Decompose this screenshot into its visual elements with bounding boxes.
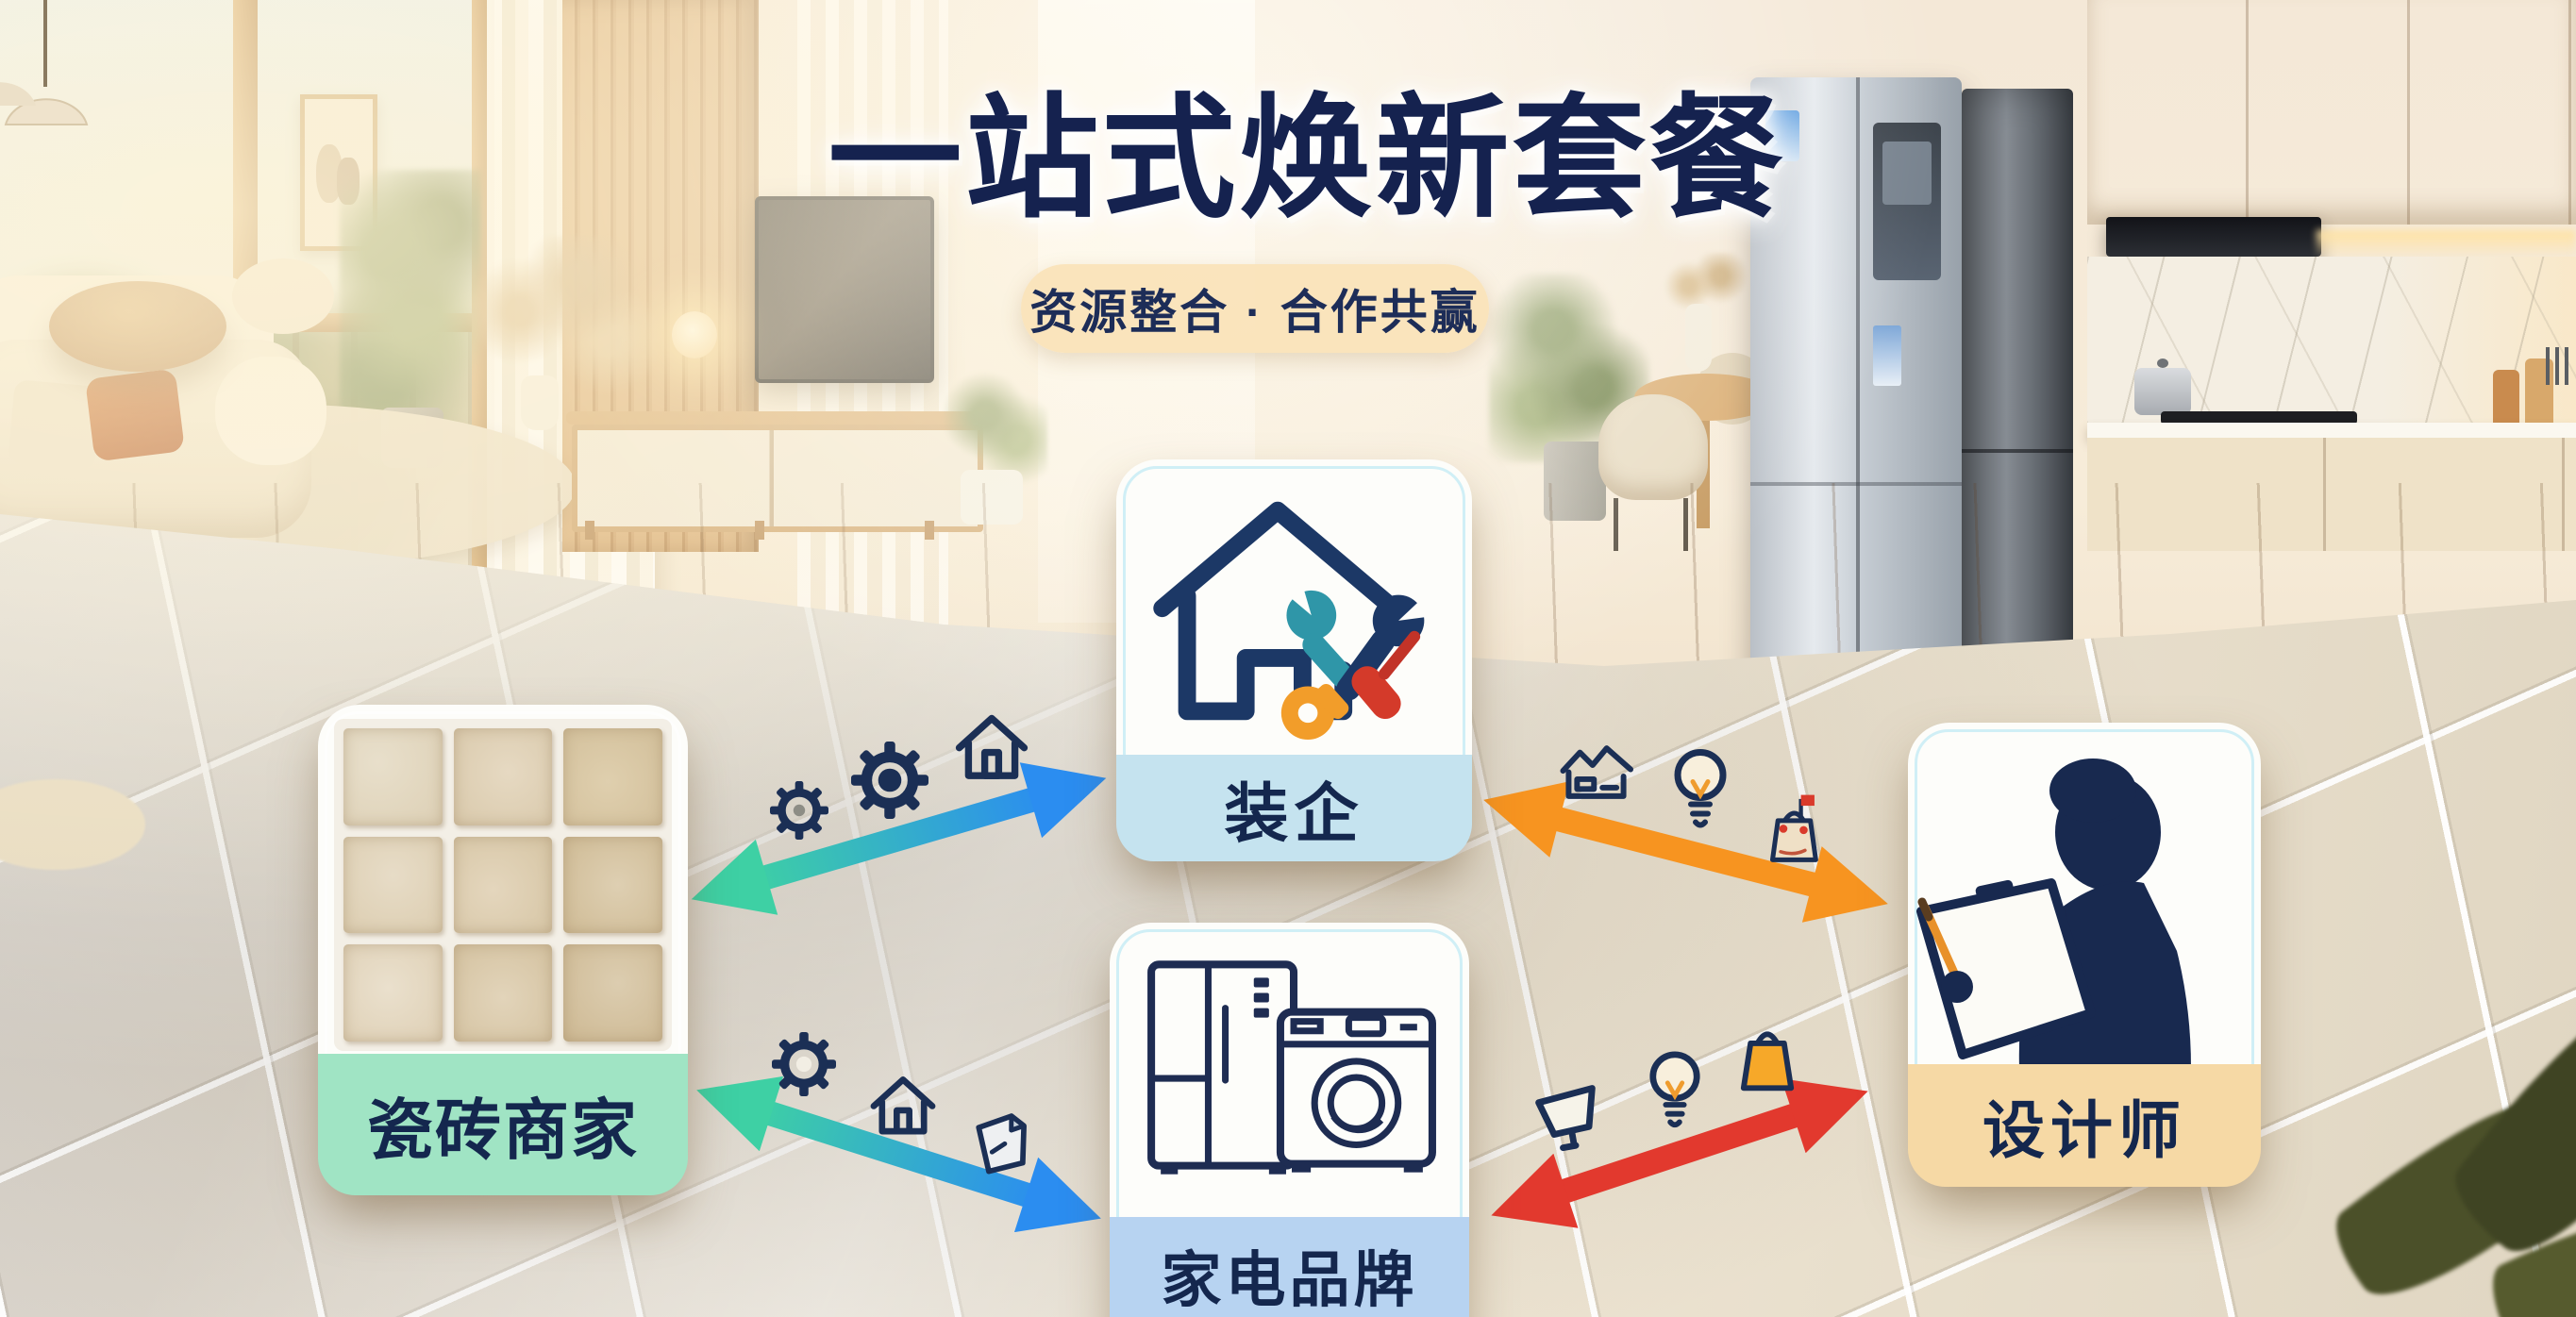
tile [563,944,662,1042]
house-icon [868,1070,938,1140]
node-label: 设计师 [1982,1080,2186,1171]
gear-icon [772,1032,836,1096]
node-label-band: 瓷砖商家 [318,1054,688,1195]
vase [521,375,559,430]
gear-icon [770,781,828,840]
node-card-decoration-company: 装企 [1116,459,1472,861]
lightbulb-icon [1672,745,1729,836]
tile [343,728,443,825]
house-sketch-icon [1559,736,1636,806]
lightbulb-icon [1648,1047,1702,1136]
node-label: 装企 [1224,761,1363,855]
tile [563,837,662,934]
shopping-bag-icon [1732,1017,1802,1096]
upper-cabinets [2087,0,2576,225]
node-card-tile-merchant: 瓷砖商家 [318,705,688,1195]
pouf [232,258,334,334]
poster: 一站式焕新套餐 资源整合 · 合作共赢 [0,0,2576,1317]
range-hood [2106,217,2321,257]
sofa-armrest [215,357,326,465]
tv-console-top [566,411,978,425]
cart-icon [1529,1075,1610,1159]
pendant-lamps [0,0,283,226]
node-label: 家电品牌 [1162,1232,1418,1317]
house-icon [953,708,1030,785]
utensil-holder [2493,370,2519,428]
bag-flag-icon [1759,787,1827,868]
tile [454,837,553,934]
tile [563,728,662,825]
under-cabinet-light [2317,230,2576,258]
node-card-designer: 设计师 [1908,723,2261,1187]
coffee-table [49,281,226,372]
poster-title: 一站式焕新套餐 [828,49,1786,243]
node-label-band: 装企 [1116,755,1472,861]
node-label: 瓷砖商家 [367,1077,639,1173]
poster-subtitle-text: 资源整合 · 合作共赢 [1029,275,1480,342]
kitchen-counter [2087,423,2576,438]
dried-flowers [460,236,659,425]
tile [343,944,443,1042]
house-with-tools-icon [1143,484,1445,754]
cooking-pot [2134,368,2191,415]
tile [454,728,553,825]
vase [1685,304,1712,372]
tile-swatch-image [334,719,672,1051]
node-label-band: 家电品牌 [1110,1217,1469,1317]
tile [454,944,553,1042]
flyer-icon [964,1104,1042,1181]
tile [343,837,443,934]
gear-icon [851,742,928,819]
knife-set [2546,347,2570,385]
fridge-washer-icon [1138,955,1442,1187]
designer-silhouette-icon [1908,732,2261,1068]
node-label-band: 设计师 [1908,1064,2261,1187]
table-lamp [672,311,717,358]
poster-subtitle: 资源整合 · 合作共赢 [1021,264,1489,353]
node-card-appliance-brand: 家电品牌 [1110,923,1469,1317]
orange-cushion [85,368,185,461]
